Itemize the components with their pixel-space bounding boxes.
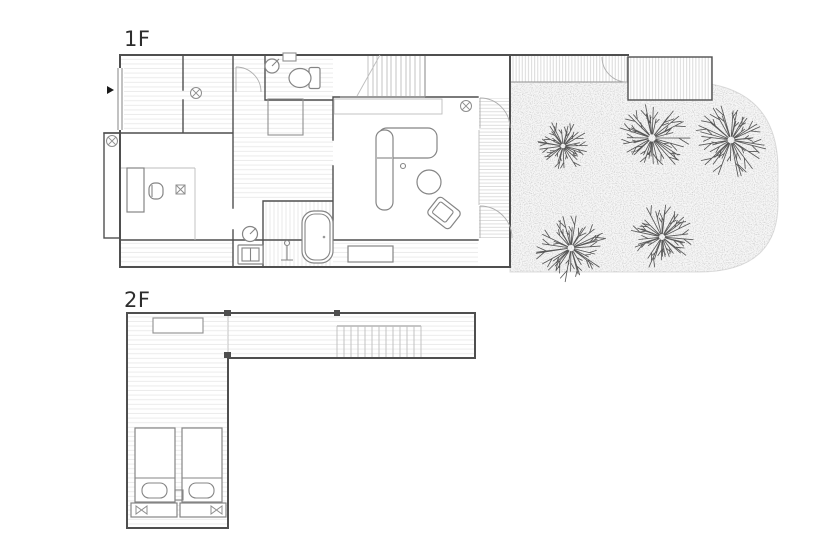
ceiling-light-symbol xyxy=(461,101,472,112)
wall-nub xyxy=(224,310,231,316)
coffee-table xyxy=(417,170,441,194)
ceiling-light-symbol xyxy=(191,88,202,99)
terrace-strip xyxy=(510,56,628,82)
study-nook xyxy=(121,168,195,240)
living-room xyxy=(348,101,472,263)
floor-2-plan xyxy=(127,310,475,528)
window xyxy=(116,68,124,130)
tv-board xyxy=(348,246,393,262)
hall-floor-texture xyxy=(233,133,333,201)
kitchen-counter xyxy=(334,99,442,114)
closet-2f xyxy=(153,318,203,333)
south-corridor-texture xyxy=(121,241,233,266)
wood-deck xyxy=(628,57,712,100)
bed-right xyxy=(180,428,226,517)
floor-plan-page: 1F 2F xyxy=(0,0,840,560)
toilet-icon xyxy=(289,69,311,88)
washroom xyxy=(238,227,263,265)
floor-texture xyxy=(121,56,333,133)
armchair xyxy=(426,196,462,231)
wall-nub xyxy=(334,310,340,316)
floor-2-label: 2F xyxy=(124,288,150,312)
floor-outlet-symbol xyxy=(176,185,185,194)
entrance-arrow-icon xyxy=(107,86,114,94)
floor-1-label: 1F xyxy=(124,27,150,51)
floor-plan-canvas: 1F 2F xyxy=(0,0,840,560)
sofa xyxy=(376,130,393,210)
stairs-1f xyxy=(340,55,425,97)
ceiling-light-symbol xyxy=(107,136,118,147)
desk-chair xyxy=(149,183,163,199)
shelf xyxy=(283,53,296,61)
bed-left xyxy=(131,428,177,517)
wall-nub xyxy=(224,352,231,358)
desk xyxy=(127,168,144,212)
entry-bay xyxy=(104,133,120,238)
